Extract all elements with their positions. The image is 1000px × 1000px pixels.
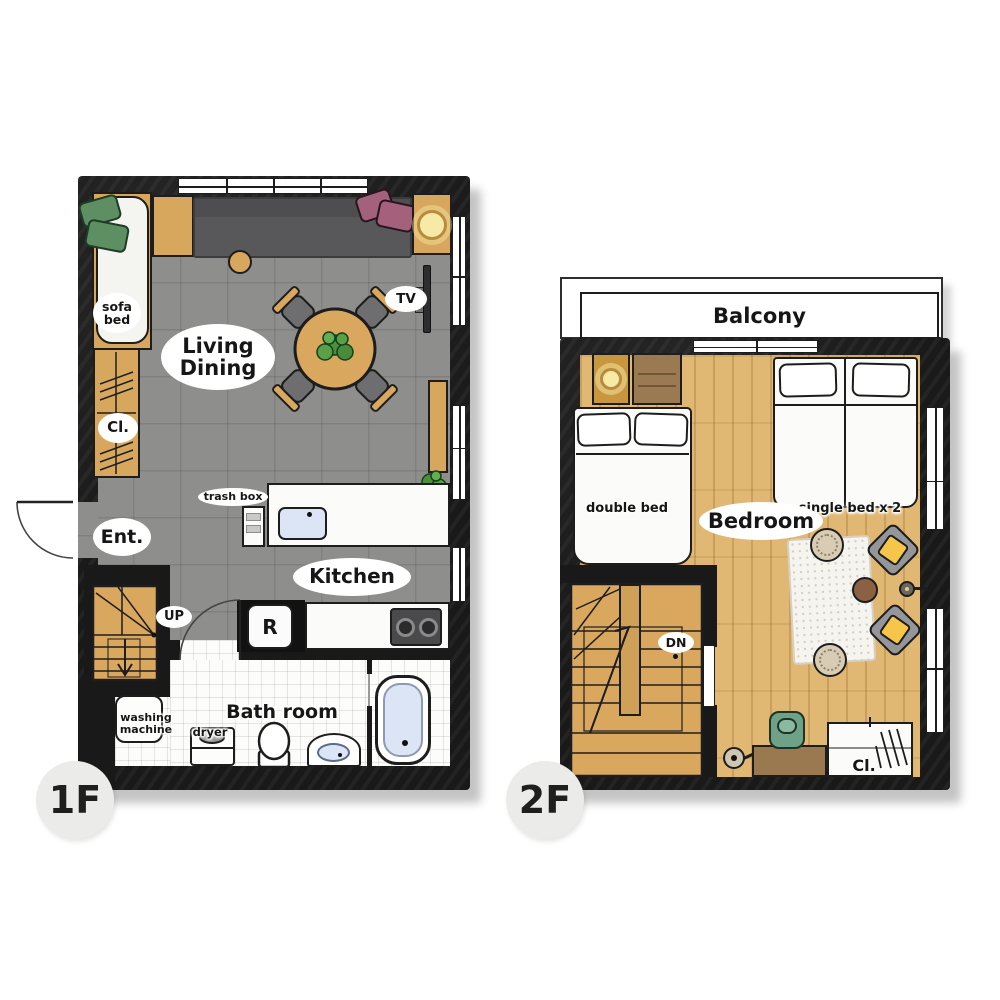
faucet-icon (307, 512, 312, 517)
stair-top-wall (560, 565, 717, 583)
living-dining-label: Living Dining (161, 324, 275, 390)
stair-door-opening (703, 645, 715, 707)
canvas: R (0, 0, 1000, 1000)
bathtub (375, 675, 431, 765)
nightstand-lamp (600, 368, 622, 390)
entrance-door-arc (14, 494, 84, 564)
stove (390, 608, 442, 646)
blanket-edge (576, 453, 689, 455)
dining-set (265, 279, 405, 419)
closet-2f-label: Cl. (842, 739, 886, 774)
side-table-left (152, 195, 194, 257)
balcony-inner: Balcony (580, 292, 939, 339)
round-stool (228, 250, 252, 274)
stairs-up (92, 585, 158, 681)
bedroom-right-window-2 (926, 608, 944, 733)
dryer-label: dryer (188, 713, 232, 738)
table-lamp (417, 210, 447, 240)
single-bed-divider (844, 359, 846, 506)
pouf (813, 643, 847, 677)
floor2-badge: 2F (506, 761, 584, 839)
kitchen-label: Kitchen (293, 558, 411, 596)
bath-divider-wall-bottom (367, 706, 372, 766)
up-label: UP (156, 606, 192, 628)
burner-icon (396, 618, 415, 637)
dining-right-window (452, 405, 466, 500)
sink-basin (317, 743, 350, 762)
bathroom-sink (307, 733, 361, 767)
entrance-label: Ent. (93, 518, 151, 556)
down-marker-dot (673, 654, 678, 659)
bath-divider-wall-top (367, 660, 372, 674)
sideboard (428, 380, 448, 473)
down-label: DN (658, 632, 694, 653)
bed-pillow (633, 412, 688, 447)
bath-sliding-door (368, 674, 370, 706)
bedroom-top-window (693, 340, 818, 353)
bed-pillow (852, 362, 911, 398)
bedroom-right-window-1 (926, 407, 944, 530)
dresser (632, 353, 682, 405)
tv-label: TV (385, 286, 427, 312)
balcony: Balcony (560, 277, 943, 339)
closet-1f-label: Cl. (98, 413, 138, 443)
desk-lamp (723, 747, 745, 769)
living-top-window (178, 178, 368, 194)
floor-plan-1f: R (78, 176, 470, 790)
desk-chair (769, 711, 805, 749)
balcony-label: Balcony (713, 304, 806, 328)
sofa-bed-label: sofa bed (93, 293, 141, 333)
bedroom-label: Bedroom (699, 502, 823, 540)
pouf (810, 528, 844, 562)
kitchen-right-window (452, 547, 466, 602)
desk (752, 745, 827, 777)
toilet (255, 721, 293, 769)
floor1-badge: 1F (36, 761, 114, 839)
trash-box (242, 506, 265, 547)
washing-machine-label: washing machine (114, 700, 178, 736)
bathroom-door-arc (176, 594, 246, 664)
stair-right-wall (703, 583, 717, 647)
stairs-down (570, 583, 703, 777)
bathroom-label: Bath room (223, 681, 341, 723)
floor-plan-2f: Balcony (560, 277, 950, 790)
trash-box-label: trash box (198, 488, 268, 506)
bed-pillow (576, 412, 631, 447)
fridge-label: R (262, 615, 277, 639)
blanket-edge (775, 404, 916, 406)
bed-pillow (779, 362, 838, 398)
double-bed-label: double bed (585, 488, 669, 517)
kitchen-sink (278, 507, 327, 540)
living-right-window (452, 216, 466, 326)
fridge: R (247, 604, 293, 649)
side-table-round (852, 577, 878, 603)
burner-icon (419, 618, 438, 637)
bathtub-basin (383, 683, 423, 757)
floor-lamp (899, 581, 915, 597)
stair-right-wall-lower (703, 705, 717, 777)
